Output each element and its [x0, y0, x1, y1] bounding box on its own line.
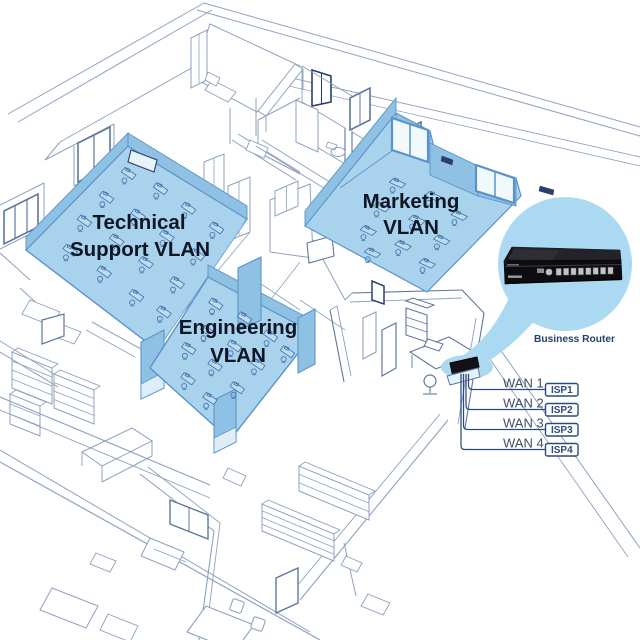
svg-text:ISP2: ISP2: [551, 405, 573, 416]
svg-text:WAN 2: WAN 2: [503, 396, 544, 411]
svg-text:ISP3: ISP3: [551, 425, 573, 436]
svg-text:ISP4: ISP4: [551, 445, 573, 456]
svg-text:Marketing: Marketing: [363, 190, 460, 213]
svg-text:Engineering: Engineering: [179, 316, 297, 339]
svg-text:VLAN: VLAN: [210, 344, 266, 367]
svg-text:ISP1: ISP1: [551, 385, 573, 396]
svg-text:Business Router: Business Router: [534, 334, 615, 345]
svg-text:Technical: Technical: [92, 211, 185, 234]
svg-text:WAN 4: WAN 4: [503, 436, 544, 451]
svg-text:Support VLAN: Support VLAN: [70, 238, 210, 261]
svg-text:WAN 1: WAN 1: [503, 376, 544, 391]
svg-text:VLAN: VLAN: [383, 216, 439, 239]
svg-text:WAN 3: WAN 3: [503, 416, 544, 431]
